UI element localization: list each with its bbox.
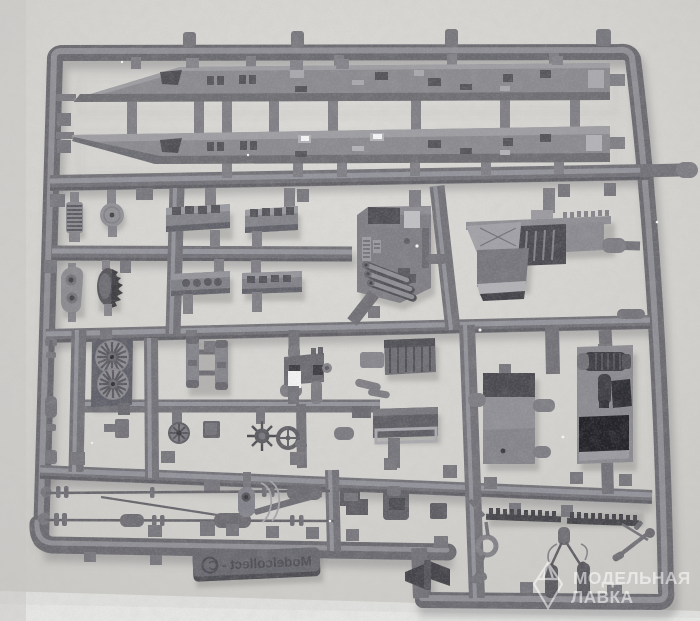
svg-text:МОДЕЛЬНАЯ: МОДЕЛЬНАЯ [573, 568, 691, 588]
svg-text:ЛАВКА: ЛАВКА [571, 587, 634, 607]
